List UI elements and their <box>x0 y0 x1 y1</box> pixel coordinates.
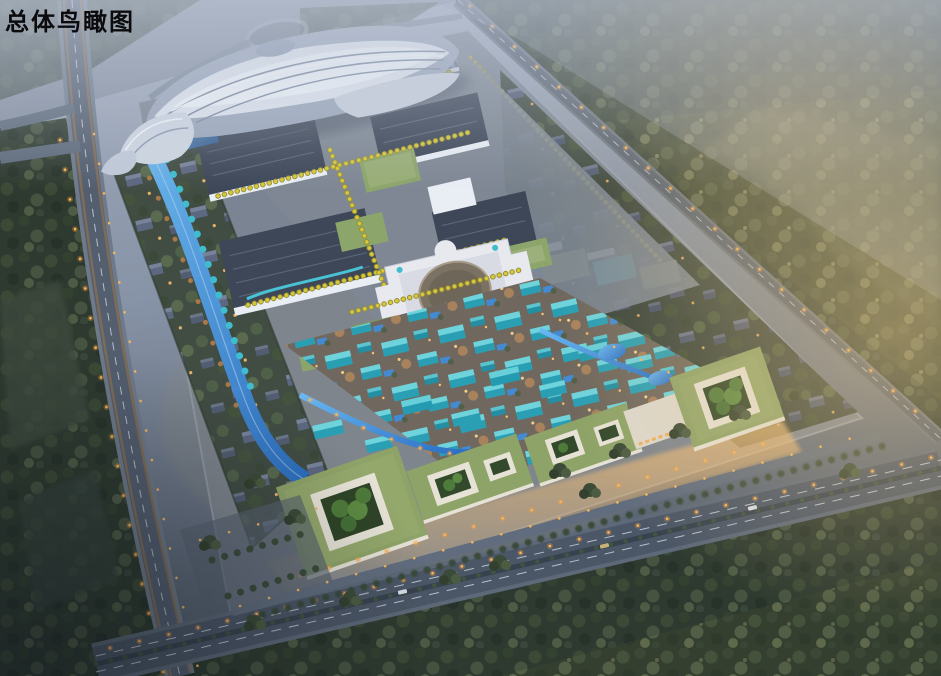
aerial-rendering-canvas: 总体鸟瞰图 <box>0 0 941 676</box>
aerial-rendering <box>0 0 941 676</box>
page-title: 总体鸟瞰图 <box>5 2 135 37</box>
